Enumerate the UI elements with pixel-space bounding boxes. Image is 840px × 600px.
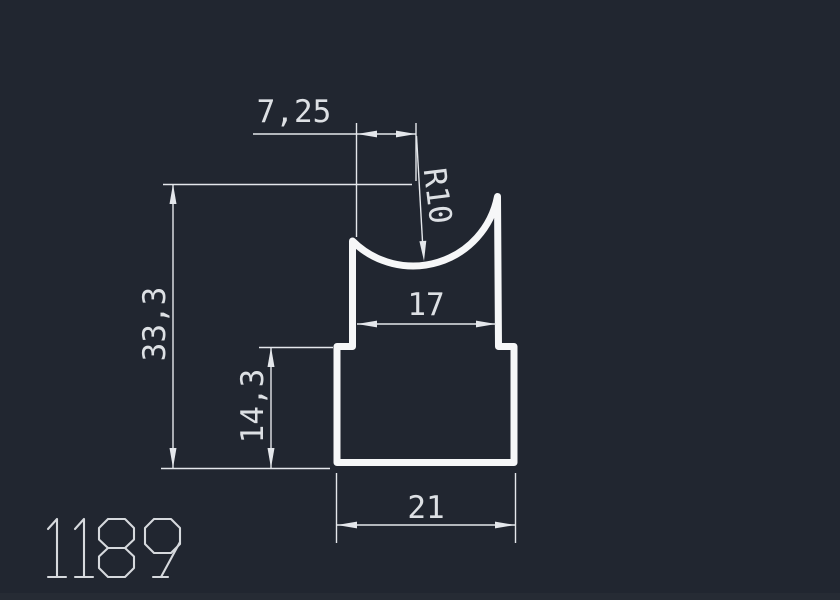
dim-label-overall-height: 33,3 bbox=[139, 244, 171, 404]
dim-label-lower-height: 14,3 bbox=[237, 326, 269, 486]
window-bottom-edge bbox=[0, 593, 840, 600]
part-number-digit-stroke bbox=[75, 519, 84, 577]
dim-label-top-offset: 7,25 bbox=[214, 96, 374, 128]
dim-arrowhead bbox=[357, 131, 377, 138]
dim-arrowhead bbox=[419, 241, 426, 261]
part-number-digit-stroke bbox=[161, 542, 180, 577]
part-number-digit-stroke bbox=[48, 519, 57, 577]
dimension-lines bbox=[161, 123, 516, 543]
part-number-digit-stroke bbox=[145, 519, 180, 553]
dim-arrowhead bbox=[476, 321, 496, 328]
part-number-digit-stroke bbox=[99, 519, 134, 548]
dim-arrowhead bbox=[170, 448, 177, 468]
dim-arrowhead bbox=[357, 321, 377, 328]
part-number-digit-stroke bbox=[99, 548, 134, 577]
dim-label-inner-width: 17 bbox=[346, 289, 506, 321]
part-number-text bbox=[48, 519, 180, 577]
dim-arrowhead bbox=[170, 184, 177, 204]
drawing-canvas[interactable]: 7,25 R10 33,3 14,3 17 21 bbox=[0, 0, 840, 600]
dim-label-bottom-width: 21 bbox=[346, 492, 506, 524]
